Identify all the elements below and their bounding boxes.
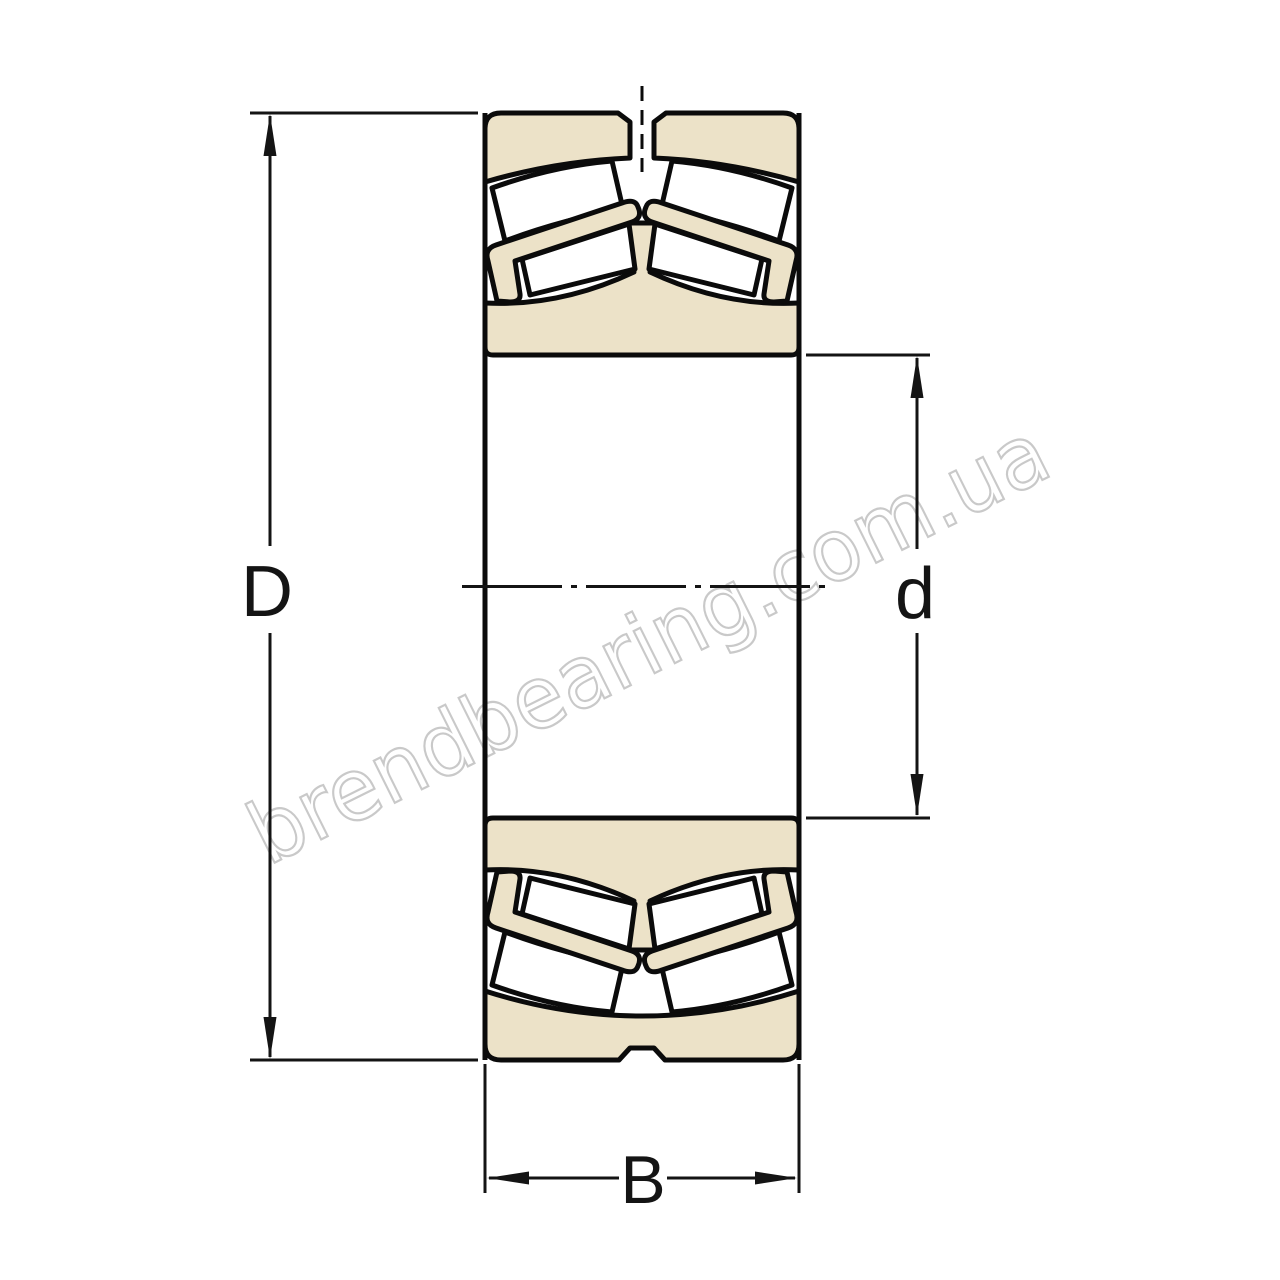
- arrowhead-D-up: [264, 114, 277, 156]
- bearing-half-top: [485, 161, 799, 355]
- arrowhead-D-down: [264, 1017, 277, 1059]
- width-label: B: [620, 1142, 665, 1218]
- watermark-text: brendbearing.com.ua: [233, 403, 1065, 885]
- arrowhead-B-left: [487, 1172, 529, 1185]
- outer-diameter-label: D: [241, 552, 293, 632]
- bore-diameter-label: d: [895, 554, 935, 634]
- outer-ring-bottom: [485, 991, 799, 1060]
- drawing-canvas: brendbearing.com.ua: [0, 0, 1280, 1280]
- bearing-half-bottom: [485, 818, 799, 1012]
- arrowhead-d-up: [911, 356, 924, 398]
- arrowhead-B-right: [755, 1172, 797, 1185]
- arrowhead-d-down: [911, 774, 924, 816]
- bearing-cross-section-diagram: brendbearing.com.ua: [0, 0, 1280, 1280]
